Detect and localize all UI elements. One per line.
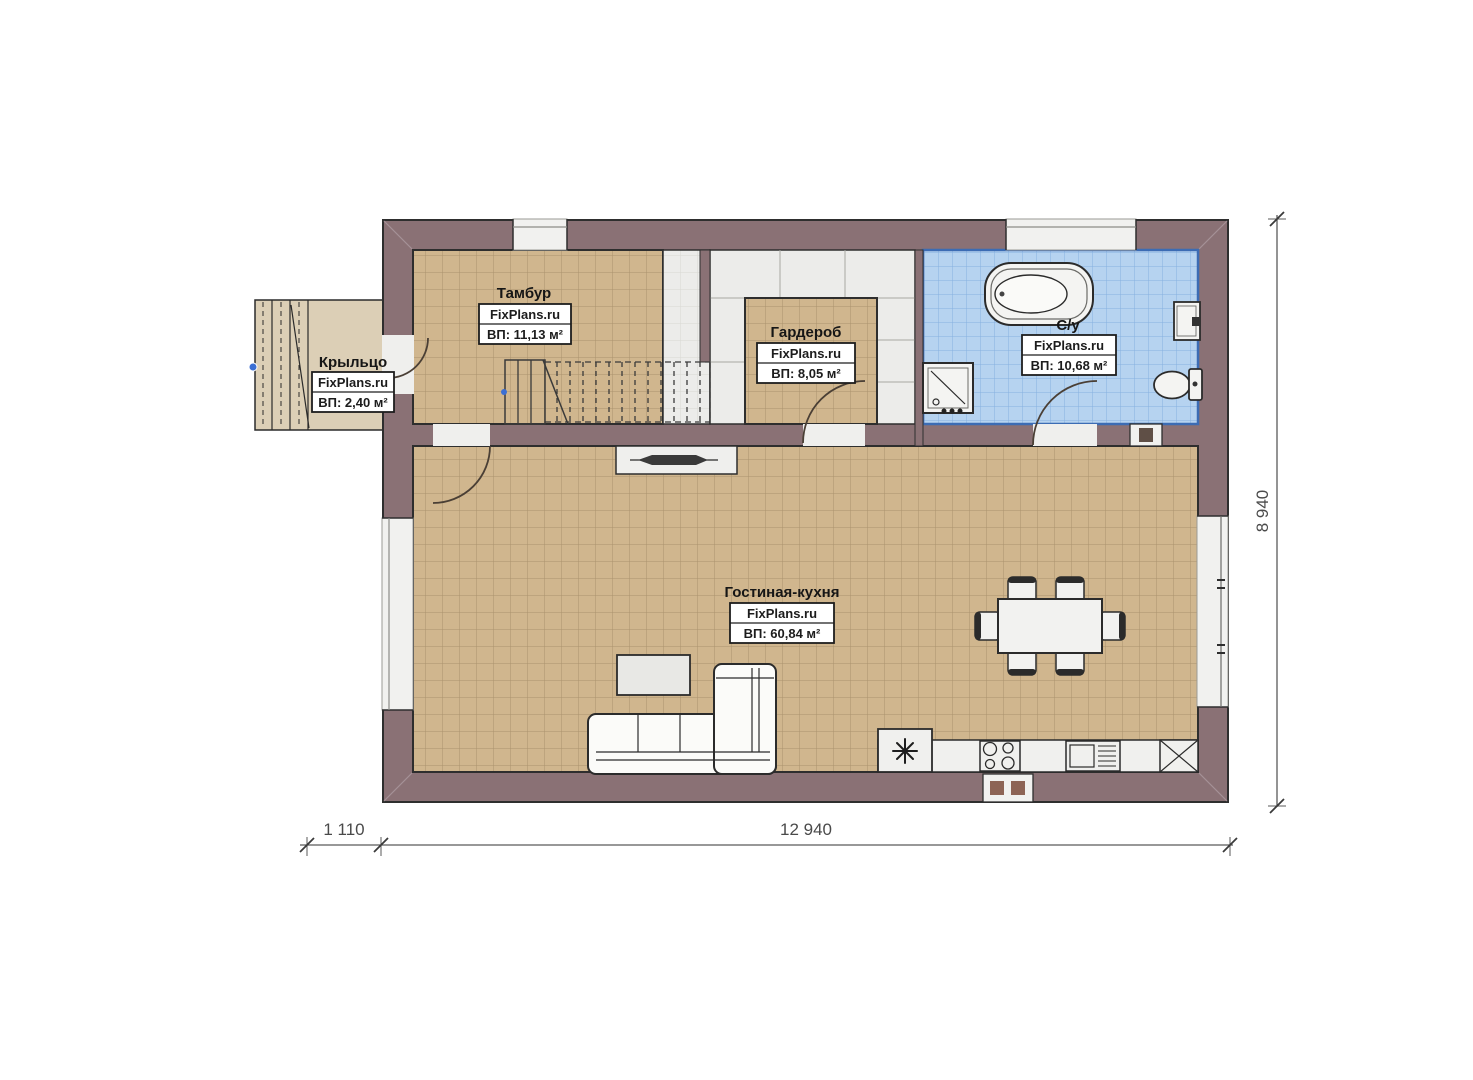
bathtub [985, 263, 1093, 325]
area-tambur: ВП: 11,13 м² [487, 327, 564, 342]
fridge-asterisk-icon [893, 739, 917, 763]
dim-label-height: 8 940 [1253, 490, 1272, 533]
room-title-garderob: Гардероб [771, 324, 842, 341]
porch-marker-dot [249, 363, 257, 371]
room-title-gostinaya: Гостиная-кухня [725, 584, 840, 601]
area-su: ВП: 10,68 м² [1031, 358, 1108, 373]
floor-plan-canvas: Тамбур FixPlans.ru ВП: 11,13 м² Гардероб… [0, 0, 1473, 1080]
window-right [1197, 516, 1228, 707]
label-box-gostinaya: FixPlans.ru ВП: 60,84 м² [730, 603, 834, 643]
area-kryltso: ВП: 2,40 м² [318, 395, 388, 410]
sink-tap [1192, 317, 1200, 326]
toilet [1154, 369, 1202, 400]
room-title-su: С/у [1056, 317, 1080, 334]
label-box-kryltso: FixPlans.ru ВП: 2,40 м² [312, 372, 394, 412]
watermark-kryltso: FixPlans.ru [318, 375, 388, 390]
chimney-block [983, 774, 1033, 802]
kitchen-sink-unit [1066, 741, 1120, 771]
watermark-garderob: FixPlans.ru [771, 346, 841, 361]
room-title-tambur: Тамбур [497, 285, 551, 302]
label-box-garderob: FixPlans.ru ВП: 8,05 м² [757, 343, 855, 383]
interior-wall-hall [700, 250, 710, 362]
window-top-right [1006, 219, 1136, 250]
vent-spindle-icon [638, 455, 708, 465]
living-door-opening [433, 424, 490, 446]
coffee-table [617, 655, 690, 695]
dim-label-width: 12 940 [780, 820, 832, 839]
room-title-kryltso: Крыльцо [319, 354, 387, 371]
watermark-tambur: FixPlans.ru [490, 307, 560, 322]
window-left [382, 518, 413, 710]
window-top-left [513, 219, 567, 250]
floor-plan-page: Тамбур FixPlans.ru ВП: 11,13 м² Гардероб… [0, 0, 1473, 1080]
dim-label-offset: 1 110 [323, 820, 364, 839]
area-garderob: ВП: 8,05 м² [771, 366, 841, 381]
garderob-door-opening [803, 424, 865, 446]
wall-niche [616, 446, 737, 474]
interior-wall-bath [915, 250, 923, 446]
watermark-gostinaya: FixPlans.ru [747, 606, 817, 621]
dining-table [998, 599, 1102, 653]
stove [980, 741, 1020, 771]
vent-box [1130, 424, 1162, 446]
tub-drain [1000, 292, 1005, 297]
bath-door-opening [1033, 424, 1097, 446]
label-box-tambur: FixPlans.ru ВП: 11,13 м² [479, 304, 571, 344]
bathroom-sink [1174, 302, 1200, 340]
corner-cabinet-x-icon [1160, 740, 1198, 772]
area-gostinaya: ВП: 60,84 м² [744, 626, 821, 641]
label-box-su: FixPlans.ru ВП: 10,68 м² [1022, 335, 1116, 375]
shower [923, 363, 973, 414]
dimension-bottom [300, 837, 1237, 856]
stairs-marker-dot [501, 389, 507, 395]
watermark-su: FixPlans.ru [1034, 338, 1104, 353]
